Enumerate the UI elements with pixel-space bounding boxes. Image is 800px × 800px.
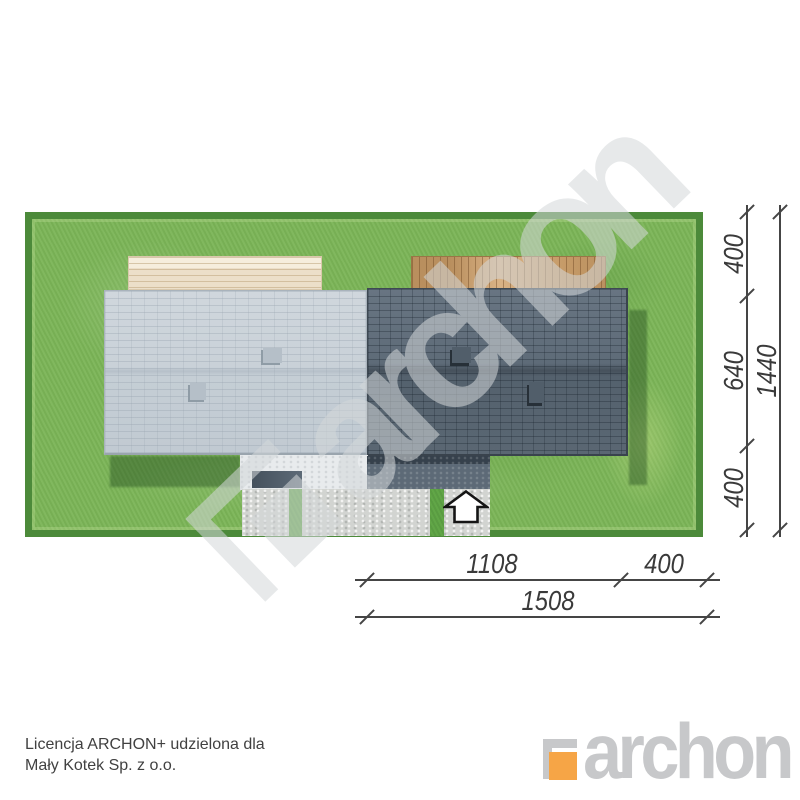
dimension-label-right-total: 1440 [751, 333, 783, 410]
grass-strip [289, 489, 302, 536]
dimension-label-bottom-total: 1508 [510, 585, 587, 617]
roof-shadow-bottom-left [110, 456, 240, 487]
dimension-label-bottom-right: 400 [626, 548, 703, 580]
terrace-right-wood [411, 256, 606, 289]
chimney-icon [529, 382, 544, 403]
chimney-icon [452, 347, 471, 363]
house-roof-left-half [104, 290, 367, 455]
grass-strip [430, 489, 444, 536]
license-line-2: Mały Kotek Sp. z o.o. [25, 755, 265, 776]
license-text: Licencja ARCHON+ udzielona dla Mały Kote… [25, 734, 265, 776]
site-plan-canvas: archon 400 640 400 1440 1108 400 1508 Li… [0, 0, 800, 800]
dimension-label-bottom-left: 1108 [454, 548, 531, 580]
roof-shadow-right [629, 310, 647, 485]
entrance-threshold [252, 471, 302, 488]
garage-forecourt [367, 456, 490, 490]
license-line-1: Licencja ARCHON+ udzielona dla [25, 734, 265, 755]
dimension-label-right-bottom: 400 [718, 450, 750, 527]
dimension-label-right-top: 400 [718, 216, 750, 293]
logo-orange-square-icon [549, 752, 577, 780]
dimension-label-right-mid: 640 [718, 333, 750, 410]
house-roof-right-half [367, 288, 628, 456]
terrace-left-light-wood [128, 256, 322, 290]
chimney-icon [263, 348, 282, 363]
chimney-icon [190, 383, 206, 400]
logo-text: archon [583, 712, 790, 790]
entrance-arrow-icon [443, 490, 489, 524]
